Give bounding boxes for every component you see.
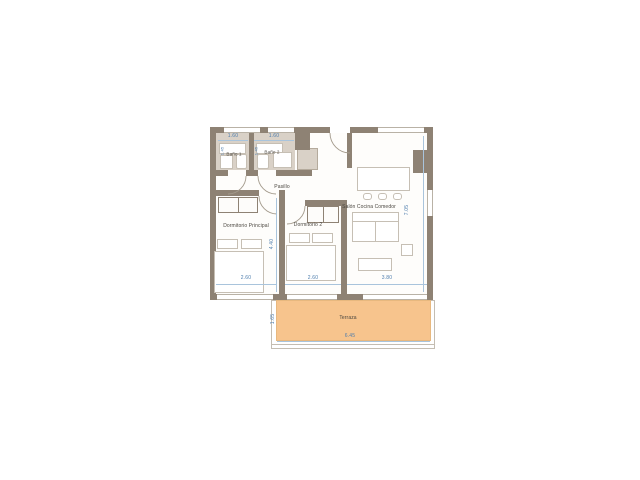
dim-bath2-width: 1.60: [269, 133, 280, 139]
dim-bath1-width: 1.60: [228, 133, 239, 139]
dim-line-bedroom2-width: [285, 284, 341, 285]
wall-entry: [295, 133, 310, 150]
dim-bedroom-main-width: 2.60: [241, 275, 252, 281]
kitchen-island: [357, 167, 410, 191]
window-living-side: [427, 190, 433, 216]
room-label-hallway: Pasillo: [274, 184, 289, 190]
bed-bedroom-main: [214, 251, 264, 293]
window-bedroom-main: [217, 294, 273, 300]
terrace-rail-line: [271, 344, 435, 345]
entry-closet: [297, 148, 318, 170]
room-label-bath2: Baño 2: [264, 150, 279, 155]
dim-line-terrace-width: [277, 341, 430, 342]
pillow-main-1: [217, 239, 238, 249]
pillar-kitchen: [413, 150, 427, 173]
dim-line-bath2-width: [254, 140, 294, 141]
dim-bath2-depth: 1.45: [254, 147, 259, 156]
dim-line-bath1-width: [218, 140, 248, 141]
wall-entry-stub: [347, 133, 352, 168]
pillow-b2-1: [289, 233, 310, 243]
wardrobe-main-divider: [238, 198, 239, 212]
sink-bath1: [220, 155, 233, 169]
wall-bedroom2-living: [341, 200, 347, 294]
dim-bath1-depth: 1.45: [220, 147, 225, 156]
dim-line-bedroom-depth: [276, 198, 277, 292]
wall-under-bath-2: [246, 170, 258, 176]
dim-bedroom-depth: 4.40: [269, 239, 275, 250]
stool-3: [393, 193, 402, 200]
room-label-bath1: Baño 1: [226, 152, 241, 157]
window-kitchen: [378, 127, 424, 133]
tv-bench: [358, 258, 392, 271]
dim-line-living-width: [347, 284, 427, 285]
wall-bedrooms-divider: [279, 190, 285, 294]
floor-plan-canvas: Baño 1 Baño 2 Pasillo Dormitorio Princip…: [0, 0, 640, 480]
dim-terrace-width: 6.45: [345, 333, 356, 339]
room-label-bedroom-main: Dormitorio Principal: [223, 223, 269, 229]
room-label-bedroom2: Dormitorio 2: [294, 222, 322, 228]
side-table: [401, 244, 413, 256]
dim-line-bedroom-main-width: [216, 284, 277, 285]
stool-1: [363, 193, 372, 200]
dim-living-width: 3.80: [382, 275, 393, 281]
pillow-main-2: [241, 239, 262, 249]
sofa-cushion-line: [375, 222, 376, 241]
room-label-terrace: Terraza: [339, 315, 356, 321]
toilet-bath2: [257, 154, 269, 169]
window-bedroom2: [287, 294, 337, 300]
room-label-living: Salón Cocina Comedor: [342, 204, 396, 210]
stool-2: [378, 193, 387, 200]
wall-bedroom-main-top: [216, 190, 259, 196]
dim-line-living-depth: [423, 136, 424, 292]
dim-bedroom2-width: 2.60: [308, 275, 319, 281]
pillow-b2-2: [312, 233, 333, 243]
dim-living-depth: 7.05: [404, 205, 410, 216]
wardrobe-2-divider: [323, 207, 324, 222]
dim-terrace-depth: 1.65: [270, 314, 276, 325]
terrace-sliding-door: [363, 294, 427, 300]
wall-under-bath-3: [276, 170, 312, 176]
wall-under-bath-1: [216, 170, 228, 176]
